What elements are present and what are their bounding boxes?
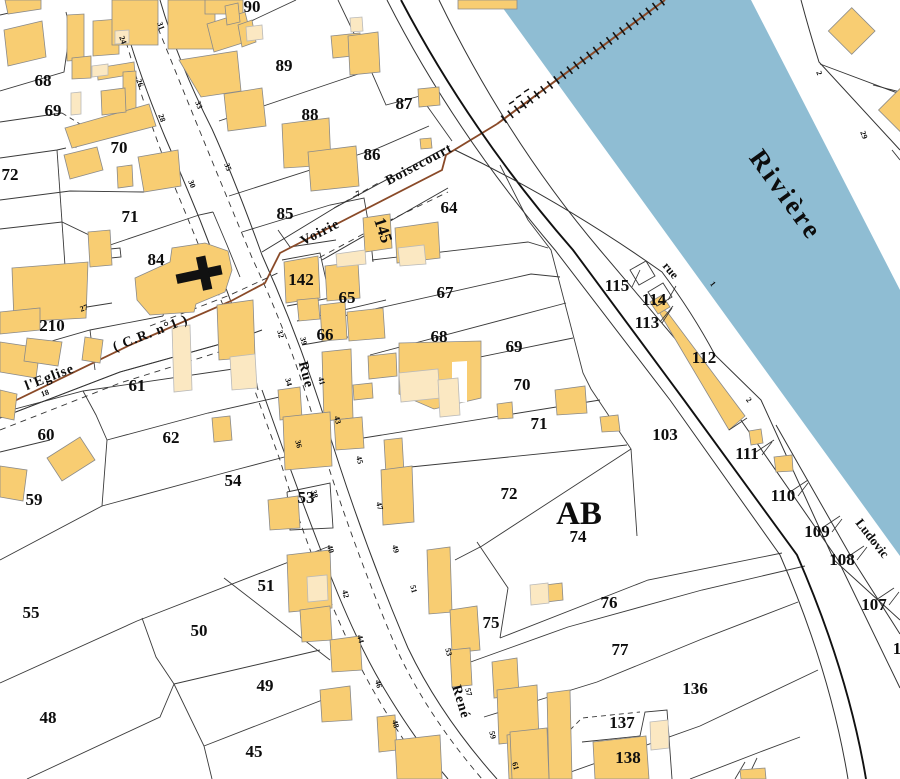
svg-text:65: 65 <box>339 288 356 307</box>
svg-text:110: 110 <box>771 486 796 505</box>
svg-text:108: 108 <box>829 550 855 569</box>
svg-text:50: 50 <box>191 621 208 640</box>
svg-text:51: 51 <box>258 576 275 595</box>
svg-text:89: 89 <box>276 56 293 75</box>
svg-text:1: 1 <box>893 639 900 658</box>
svg-text:55: 55 <box>23 603 40 622</box>
svg-text:54: 54 <box>225 471 243 490</box>
svg-text:112: 112 <box>692 348 717 367</box>
svg-text:87: 87 <box>396 94 414 113</box>
svg-text:69: 69 <box>506 337 523 356</box>
svg-text:71: 71 <box>531 414 548 433</box>
svg-text:70: 70 <box>111 138 128 157</box>
svg-text:114: 114 <box>642 290 667 309</box>
svg-text:142: 142 <box>288 270 314 289</box>
svg-text:138: 138 <box>615 748 641 767</box>
svg-text:AB: AB <box>556 496 602 532</box>
svg-text:62: 62 <box>163 428 180 447</box>
svg-text:72: 72 <box>2 165 19 184</box>
svg-text:72: 72 <box>501 484 518 503</box>
svg-text:67: 67 <box>437 283 455 302</box>
svg-text:69: 69 <box>45 101 62 120</box>
svg-text:68: 68 <box>431 327 448 346</box>
svg-text:136: 136 <box>682 679 708 698</box>
svg-text:66: 66 <box>317 325 334 344</box>
svg-text:111: 111 <box>735 444 759 463</box>
svg-text:77: 77 <box>612 640 630 659</box>
svg-text:210: 210 <box>39 316 65 335</box>
svg-text:88: 88 <box>302 105 319 124</box>
svg-text:59: 59 <box>26 490 43 509</box>
svg-text:85: 85 <box>277 204 294 223</box>
svg-text:137: 137 <box>609 713 635 732</box>
svg-text:84: 84 <box>148 250 166 269</box>
svg-text:45: 45 <box>246 742 263 761</box>
svg-text:115: 115 <box>605 276 630 295</box>
svg-text:103: 103 <box>652 425 678 444</box>
svg-text:60: 60 <box>38 425 55 444</box>
svg-text:76: 76 <box>601 593 618 612</box>
svg-text:109: 109 <box>804 522 830 541</box>
svg-text:70: 70 <box>514 375 531 394</box>
svg-text:68: 68 <box>35 71 52 90</box>
svg-text:49: 49 <box>257 676 274 695</box>
svg-text:107: 107 <box>861 595 887 614</box>
svg-text:64: 64 <box>441 198 459 217</box>
svg-text:113: 113 <box>635 313 660 332</box>
svg-text:75: 75 <box>483 613 500 632</box>
svg-text:71: 71 <box>122 207 139 226</box>
svg-text:90: 90 <box>244 0 261 16</box>
svg-text:48: 48 <box>40 708 57 727</box>
svg-text:61: 61 <box>129 376 146 395</box>
svg-text:86: 86 <box>364 145 381 164</box>
